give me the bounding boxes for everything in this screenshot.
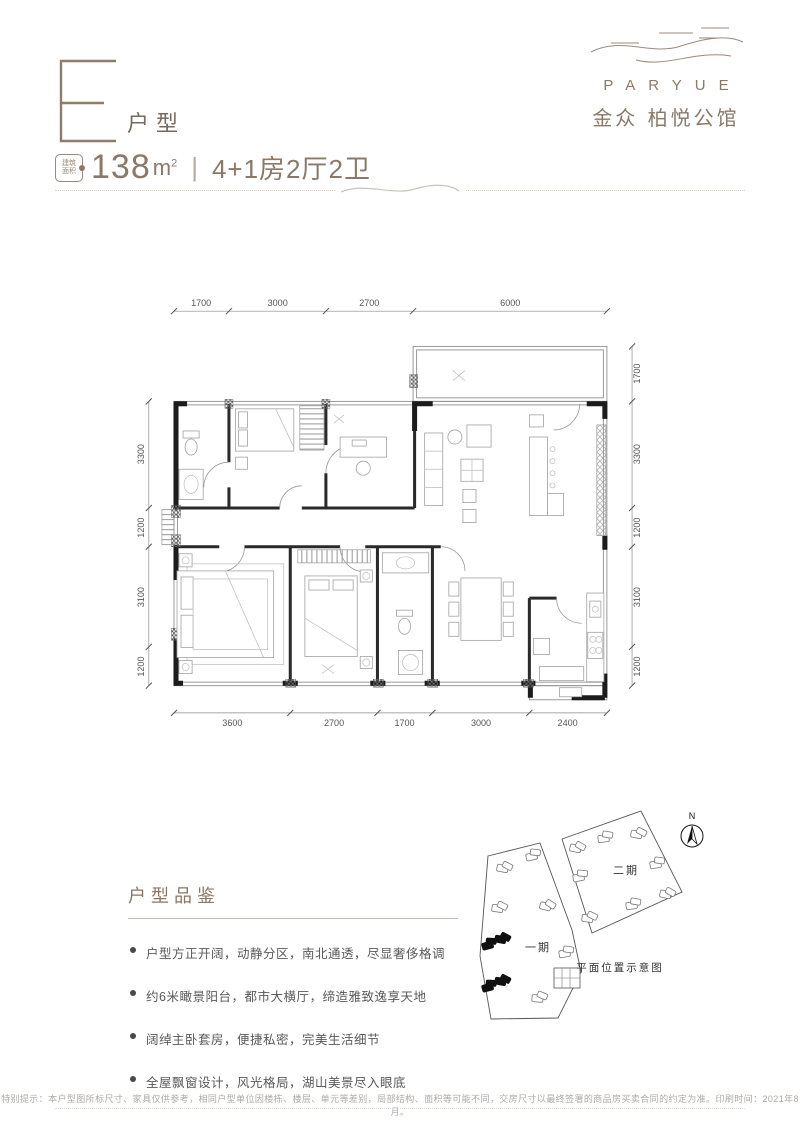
dim-top-3: 6000 bbox=[500, 298, 520, 308]
spec-row: 建筑 面积 138 m2 | 4+1房2厅2卫 bbox=[55, 148, 371, 187]
dim-top-1: 3000 bbox=[268, 298, 288, 308]
feature-text: 阔绰主卧套房，便捷私密，完美生活细节 bbox=[146, 1029, 380, 1048]
dim-left-3: 1200 bbox=[136, 656, 146, 676]
unit-letter bbox=[56, 58, 120, 144]
area-value: 138 bbox=[91, 148, 151, 187]
brand-wave-icon bbox=[581, 22, 751, 70]
phase1-buildings bbox=[480, 847, 580, 1003]
brand-name-cn: 金众 柏悦公馆 bbox=[556, 102, 776, 131]
divider-wave-icon bbox=[335, 179, 465, 201]
brand-name: PARYUE bbox=[556, 77, 776, 94]
dim-bottom-2: 1700 bbox=[394, 718, 414, 728]
compass-icon: N bbox=[681, 811, 703, 847]
feature-item: 全屋飘窗设计，风光格局，湖山美景尽入眼底 bbox=[128, 1072, 478, 1091]
features-title: 户型品鉴 bbox=[128, 882, 478, 908]
feature-text: 户型方正开阔，动静分区，南北通透，尽显奢侈格调 bbox=[146, 943, 445, 962]
bullet-icon bbox=[130, 947, 136, 953]
unit-type-label: 户型 bbox=[127, 106, 185, 138]
dim-right-2: 1200 bbox=[632, 518, 642, 538]
spec-separator: | bbox=[191, 152, 198, 183]
floor-plan: 1700 3000 2700 6000 3600 2700 1700 3000 … bbox=[128, 286, 673, 739]
dim-left-2: 3100 bbox=[136, 587, 146, 607]
brand-logo: PARYUE 金众 柏悦公馆 bbox=[556, 22, 776, 131]
dim-top-2: 2700 bbox=[359, 298, 379, 308]
dim-right-0: 1700 bbox=[632, 364, 642, 384]
dimension-lines: 1700 3000 2700 6000 3600 2700 1700 3000 … bbox=[136, 298, 642, 728]
area-badge-line1: 建筑 bbox=[62, 160, 76, 168]
bullet-icon bbox=[130, 1076, 136, 1082]
dim-bottom-3: 3000 bbox=[471, 718, 491, 728]
features-underline bbox=[128, 918, 458, 919]
features-section: 户型品鉴 户型方正开阔，动静分区，南北通透，尽显奢侈格调 约6米瞰景阳台，都市大… bbox=[128, 882, 478, 1115]
feature-item: 阔绰主卧套房，便捷私密，完美生活细节 bbox=[128, 1029, 478, 1048]
area-badge-line2: 面积 bbox=[62, 168, 76, 176]
area-unit: m2 bbox=[153, 155, 177, 181]
phase1-boundary bbox=[480, 843, 581, 1019]
site-plan: 一期 二期 N 平面位置示意图 bbox=[468, 806, 793, 1056]
feature-text: 约6米瞰景阳台，都市大横厅，缔造雅致逸享天地 bbox=[146, 986, 426, 1005]
dim-bottom-1: 2700 bbox=[324, 718, 344, 728]
dim-bottom-0: 3600 bbox=[222, 718, 242, 728]
dim-bottom-4: 2400 bbox=[558, 718, 578, 728]
feature-text: 全屋飘窗设计，风光格局，湖山美景尽入眼底 bbox=[146, 1072, 406, 1091]
dim-right-4: 1200 bbox=[632, 656, 642, 676]
dim-left-0: 3300 bbox=[136, 444, 146, 464]
area-unit-sup: 2 bbox=[171, 157, 177, 169]
phase1-label: 一期 bbox=[525, 941, 551, 954]
feature-item: 约6米瞰景阳台，都市大横厅，缔造雅致逸享天地 bbox=[128, 986, 478, 1005]
badge-dot-icon bbox=[79, 165, 85, 171]
area-badge: 建筑 面积 bbox=[55, 154, 83, 182]
bottom-divider bbox=[55, 1108, 745, 1109]
dim-top-0: 1700 bbox=[191, 298, 211, 308]
bullet-icon bbox=[130, 990, 136, 996]
dim-left-1: 1200 bbox=[136, 518, 146, 538]
site-caption: 平面位置示意图 bbox=[576, 961, 664, 974]
dim-right-3: 3100 bbox=[632, 587, 642, 607]
dim-right-1: 3300 bbox=[632, 444, 642, 464]
feature-item: 户型方正开阔，动静分区，南北通透，尽显奢侈格调 bbox=[128, 943, 478, 962]
features-list: 户型方正开阔，动静分区，南北通透，尽显奢侈格调 约6米瞰景阳台，都市大横厅，缔造… bbox=[128, 943, 478, 1091]
bullet-icon bbox=[130, 1033, 136, 1039]
phase2-label: 二期 bbox=[613, 864, 639, 877]
compass-label: N bbox=[689, 811, 696, 821]
furniture bbox=[177, 371, 604, 697]
disclaimer-text: 特别提示：本户型图所标尺寸、家具仅供参考，相同户型单位因楼栋、楼层、单元等差别，… bbox=[0, 1092, 800, 1118]
